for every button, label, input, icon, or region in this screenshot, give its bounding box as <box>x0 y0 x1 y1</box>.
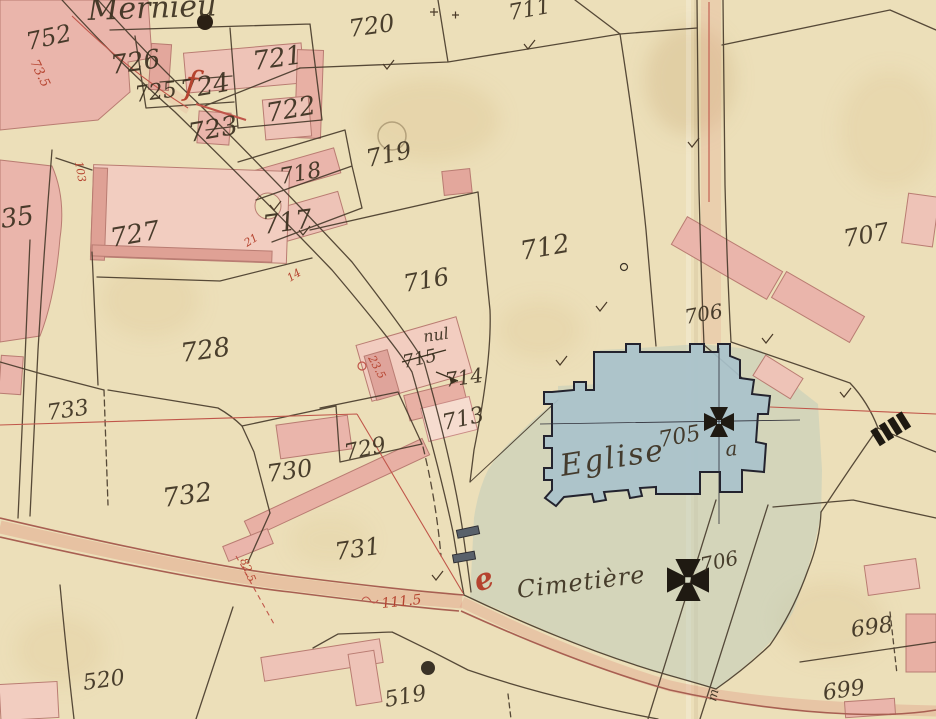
building <box>864 559 920 596</box>
boundary-line <box>0 362 270 513</box>
red-measure-14: 14 <box>285 266 304 284</box>
boundary-line-dashed <box>508 694 511 719</box>
parcel-label-728: 728 <box>179 332 232 369</box>
red-traverse <box>0 414 463 593</box>
parcel-label-731: 731 <box>333 532 382 566</box>
map-title: Mernieu <box>86 0 217 28</box>
red-measure-103: 103 <box>72 160 88 183</box>
nul-note: nul <box>422 324 450 346</box>
cadastral-map: Mernieu 752 726 725 724 721 722 723 720 … <box>0 0 936 719</box>
building <box>0 160 62 342</box>
well-icon <box>421 661 435 675</box>
parcel-label-716: 716 <box>401 262 451 298</box>
parcel-label-720: 720 <box>347 9 396 43</box>
red-measure-111-5: 111.5 <box>381 592 423 612</box>
stile-icon <box>870 411 911 446</box>
letter-a: a <box>724 436 738 461</box>
parcel-label-519: 519 <box>383 681 429 713</box>
parcel-label-714: 714 <box>443 363 484 392</box>
marker-circle-icon <box>621 264 628 271</box>
map-canvas: Mernieu 752 726 725 724 721 722 723 720 … <box>0 0 936 719</box>
building <box>276 415 352 459</box>
parcel-label-733: 733 <box>45 395 90 426</box>
parcel-label-723: 723 <box>186 111 240 149</box>
parcel-label-732: 732 <box>161 477 214 514</box>
parcel-label-698: 698 <box>849 612 894 643</box>
parcel-label-730: 730 <box>265 454 314 488</box>
building <box>772 272 865 343</box>
parcel-label-711: 711 <box>507 0 553 26</box>
building <box>0 355 23 394</box>
boundary-line-dashed <box>104 390 108 505</box>
parcel-label-712: 712 <box>518 229 572 267</box>
parcel-label-735-partial: 35 <box>0 201 36 235</box>
building <box>0 682 59 719</box>
building <box>442 169 472 196</box>
church-outline <box>544 344 770 506</box>
building <box>902 193 936 247</box>
parcel-label-707: 707 <box>841 217 892 253</box>
boundary-line <box>470 192 490 482</box>
parcel-label-520: 520 <box>81 665 126 696</box>
